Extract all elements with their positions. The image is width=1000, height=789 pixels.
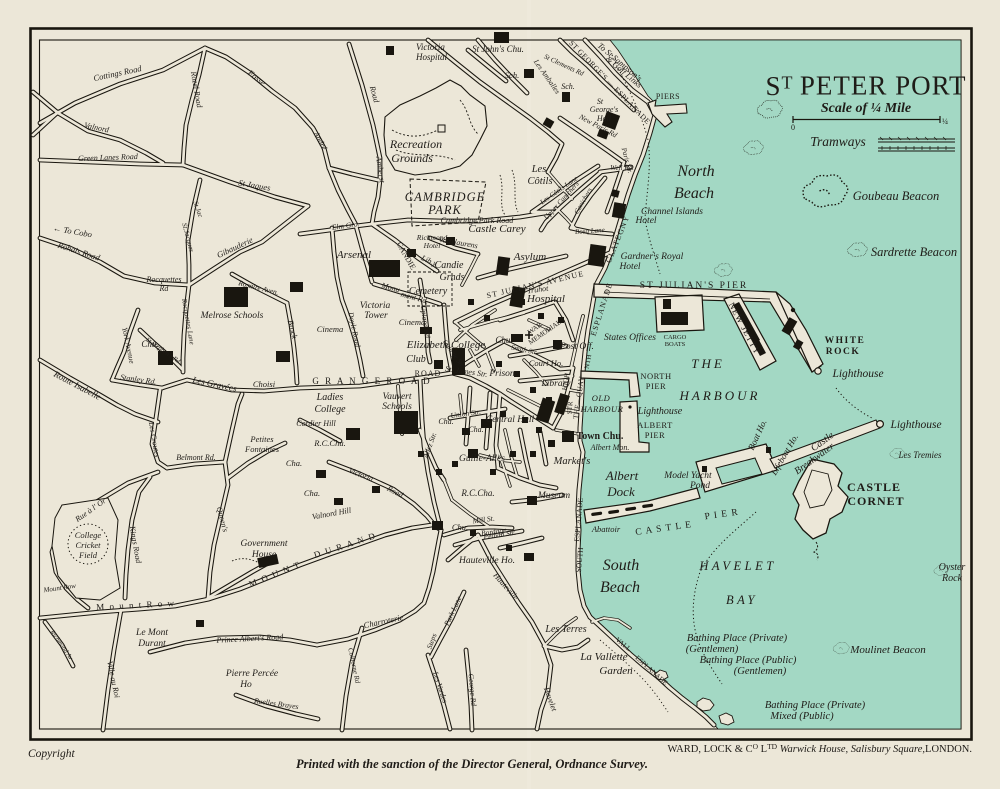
svg-text:College: College: [75, 530, 102, 540]
svg-text:Town Chu.: Town Chu.: [577, 431, 624, 442]
svg-text:Central Hall: Central Hall: [486, 415, 535, 425]
svg-text:South: South: [603, 557, 639, 574]
svg-text:Ho: Ho: [239, 680, 252, 690]
svg-text:Ladies: Ladies: [316, 392, 344, 403]
svg-text:Le Mont: Le Mont: [135, 628, 168, 638]
svg-text:Post Off.: Post Off.: [559, 341, 594, 352]
svg-text:(Gentlemen): (Gentlemen): [734, 666, 787, 677]
svg-text:Pond: Pond: [689, 481, 710, 491]
svg-text:Chu.: Chu.: [495, 335, 512, 345]
svg-text:CARGO: CARGO: [664, 334, 687, 341]
svg-text:Printed with the sanction of t: Printed with the sanction of the Directo…: [296, 757, 648, 771]
svg-text:Lighthouse: Lighthouse: [637, 406, 683, 417]
svg-text:Cinema: Cinema: [317, 324, 343, 334]
svg-text:George's: George's: [590, 105, 619, 114]
svg-text:CORNET: CORNET: [847, 494, 904, 508]
svg-text:Cha.: Cha.: [286, 458, 302, 468]
svg-text:PARK: PARK: [427, 203, 462, 217]
svg-text:Les Tremies: Les Tremies: [898, 450, 942, 460]
svg-text:ROCK: ROCK: [826, 347, 861, 357]
svg-text:PIER: PIER: [645, 430, 665, 440]
svg-text:Prison: Prison: [488, 369, 515, 379]
svg-text:Les: Les: [531, 164, 547, 175]
svg-text:Hotel: Hotel: [618, 262, 640, 272]
svg-text:Vauvert: Vauvert: [382, 392, 411, 402]
svg-text:Lighthouse: Lighthouse: [889, 419, 941, 431]
svg-text:THE: THE: [691, 356, 725, 371]
svg-text:Model Yacht: Model Yacht: [663, 471, 712, 481]
svg-text:Candie: Candie: [435, 260, 464, 271]
svg-text:OLD: OLD: [592, 393, 611, 403]
svg-text:Cha.: Cha.: [304, 488, 320, 498]
svg-text:WARD, LOCK & CO LTD Warwick Ho: WARD, LOCK & CO LTD Warwick House, Salis…: [667, 742, 972, 755]
svg-text:Bathing Place (Private): Bathing Place (Private): [687, 633, 788, 644]
svg-text:Victoria: Victoria: [360, 301, 391, 311]
svg-text:Moulinet Beacon: Moulinet Beacon: [849, 644, 926, 656]
svg-text:Rock: Rock: [941, 573, 963, 584]
svg-text:Market's: Market's: [553, 456, 591, 467]
svg-text:Beach: Beach: [674, 185, 714, 202]
svg-text:Cha.: Cha.: [468, 425, 483, 434]
svg-text:HAVELET: HAVELET: [698, 559, 776, 573]
svg-text:Club: Club: [406, 354, 425, 365]
svg-text:Castle Carey: Castle Carey: [468, 223, 525, 235]
svg-text:Hotel: Hotel: [423, 241, 441, 250]
svg-text:Asylum: Asylum: [513, 251, 546, 263]
svg-text:Field: Field: [78, 550, 98, 560]
svg-text:Albert Mon.: Albert Mon.: [590, 443, 630, 452]
svg-text:Cordier Hill: Cordier Hill: [296, 419, 336, 428]
svg-text:HARBOUR: HARBOUR: [580, 404, 624, 414]
svg-text:Guille-Allés: Guille-Allés: [459, 454, 505, 464]
svg-text:House: House: [251, 550, 276, 560]
svg-text:States Offices: States Offices: [604, 332, 656, 343]
svg-text:WHITE: WHITE: [825, 336, 866, 346]
svg-text:CASTLE: CASTLE: [847, 480, 901, 494]
svg-text:Oyster: Oyster: [939, 562, 966, 573]
svg-text:Museum: Museum: [537, 491, 570, 501]
svg-text:Choisi: Choisi: [253, 379, 276, 389]
svg-text:R.C.Chu.: R.C.Chu.: [313, 438, 345, 448]
svg-text:NORTH: NORTH: [640, 371, 671, 381]
svg-text:0: 0: [791, 123, 795, 132]
svg-text:ST JULIAN'S PIER: ST JULIAN'S PIER: [640, 281, 749, 291]
svg-text:Bathing Place (Public): Bathing Place (Public): [700, 655, 797, 666]
svg-text:Belmont Rd.: Belmont Rd.: [176, 453, 216, 462]
svg-text:Tower: Tower: [364, 311, 388, 321]
svg-text:Victoria: Victoria: [416, 42, 445, 52]
svg-text:Copyright: Copyright: [28, 748, 75, 760]
svg-text:Gardner's Royal: Gardner's Royal: [621, 252, 684, 262]
svg-text:Les Terres: Les Terres: [544, 624, 586, 635]
svg-text:HARBOUR: HARBOUR: [679, 388, 761, 403]
svg-text:Durant: Durant: [137, 639, 166, 649]
svg-text:Cha.: Cha.: [438, 417, 453, 426]
svg-text:Government: Government: [241, 539, 288, 549]
svg-text:ALBERT: ALBERT: [637, 420, 673, 430]
svg-text:Hauteville Ho.: Hauteville Ho.: [458, 556, 515, 566]
svg-text:Beach: Beach: [600, 579, 640, 596]
svg-text:La Vallette: La Vallette: [579, 651, 627, 663]
svg-text:Melrose Schools: Melrose Schools: [200, 311, 264, 321]
svg-text:ST PETER PORT: ST PETER PORT: [765, 71, 966, 102]
svg-text:Abattoir: Abattoir: [591, 524, 621, 534]
svg-text:St John's Chu.: St John's Chu.: [472, 44, 524, 54]
svg-text:Cemetery: Cemetery: [409, 286, 448, 297]
svg-text:Scale of ¼ Mile: Scale of ¼ Mile: [821, 101, 911, 116]
svg-text:(Gentlemen): (Gentlemen): [686, 644, 739, 655]
svg-text:Well Rd.: Well Rd.: [610, 164, 634, 172]
svg-text:BAY: BAY: [726, 593, 758, 607]
svg-text:R.C.Cha.: R.C.Cha.: [460, 488, 494, 498]
svg-text:Dock: Dock: [606, 484, 635, 499]
svg-text:Pierre Percée: Pierre Percée: [225, 669, 278, 679]
svg-text:Schools: Schools: [382, 402, 412, 412]
svg-text:Tramways: Tramways: [810, 134, 866, 149]
svg-text:Grnds: Grnds: [439, 272, 464, 283]
svg-text:CAMBRIDGE: CAMBRIDGE: [405, 190, 486, 204]
svg-text:Sardrette Beacon: Sardrette Beacon: [871, 245, 957, 259]
svg-text:Hotel: Hotel: [634, 216, 656, 226]
svg-text:Chu.: Chu.: [141, 339, 158, 349]
svg-text:Garden: Garden: [599, 665, 633, 677]
svg-text:Mixed (Public): Mixed (Public): [769, 711, 834, 722]
svg-text:Cricket: Cricket: [75, 540, 101, 550]
svg-text:Lighthouse: Lighthouse: [831, 368, 883, 380]
svg-text:Rocquettes: Rocquettes: [145, 275, 181, 284]
svg-text:PIER: PIER: [646, 381, 666, 391]
svg-text:Bathing Place (Private): Bathing Place (Private): [765, 700, 866, 711]
svg-text:North: North: [676, 163, 714, 180]
svg-text:Grounds: Grounds: [391, 151, 433, 165]
svg-text:Sch.: Sch.: [505, 70, 519, 80]
svg-text:¼: ¼: [942, 117, 948, 126]
svg-text:Goubeau Beacon: Goubeau Beacon: [853, 189, 939, 203]
svg-text:Court Ho.: Court Ho.: [529, 358, 563, 368]
svg-text:Côtils: Côtils: [527, 176, 552, 187]
svg-text:PIERS: PIERS: [656, 92, 680, 101]
svg-text:Recreation: Recreation: [389, 137, 442, 151]
svg-text:Albert: Albert: [605, 468, 639, 483]
svg-text:Sch.: Sch.: [561, 82, 575, 91]
svg-text:Petites: Petites: [249, 434, 274, 444]
svg-text:Fontaines: Fontaines: [244, 444, 280, 454]
svg-text:College: College: [314, 404, 346, 415]
svg-text:Rd: Rd: [159, 284, 170, 293]
svg-text:Chu.: Chu.: [452, 522, 468, 532]
svg-text:G R A N G E R O A D: G R A N G E R O A D: [312, 376, 431, 386]
svg-text:Arsenal: Arsenal: [336, 249, 371, 261]
svg-text:BOATS: BOATS: [665, 341, 686, 348]
svg-text:Hospital: Hospital: [415, 52, 448, 62]
